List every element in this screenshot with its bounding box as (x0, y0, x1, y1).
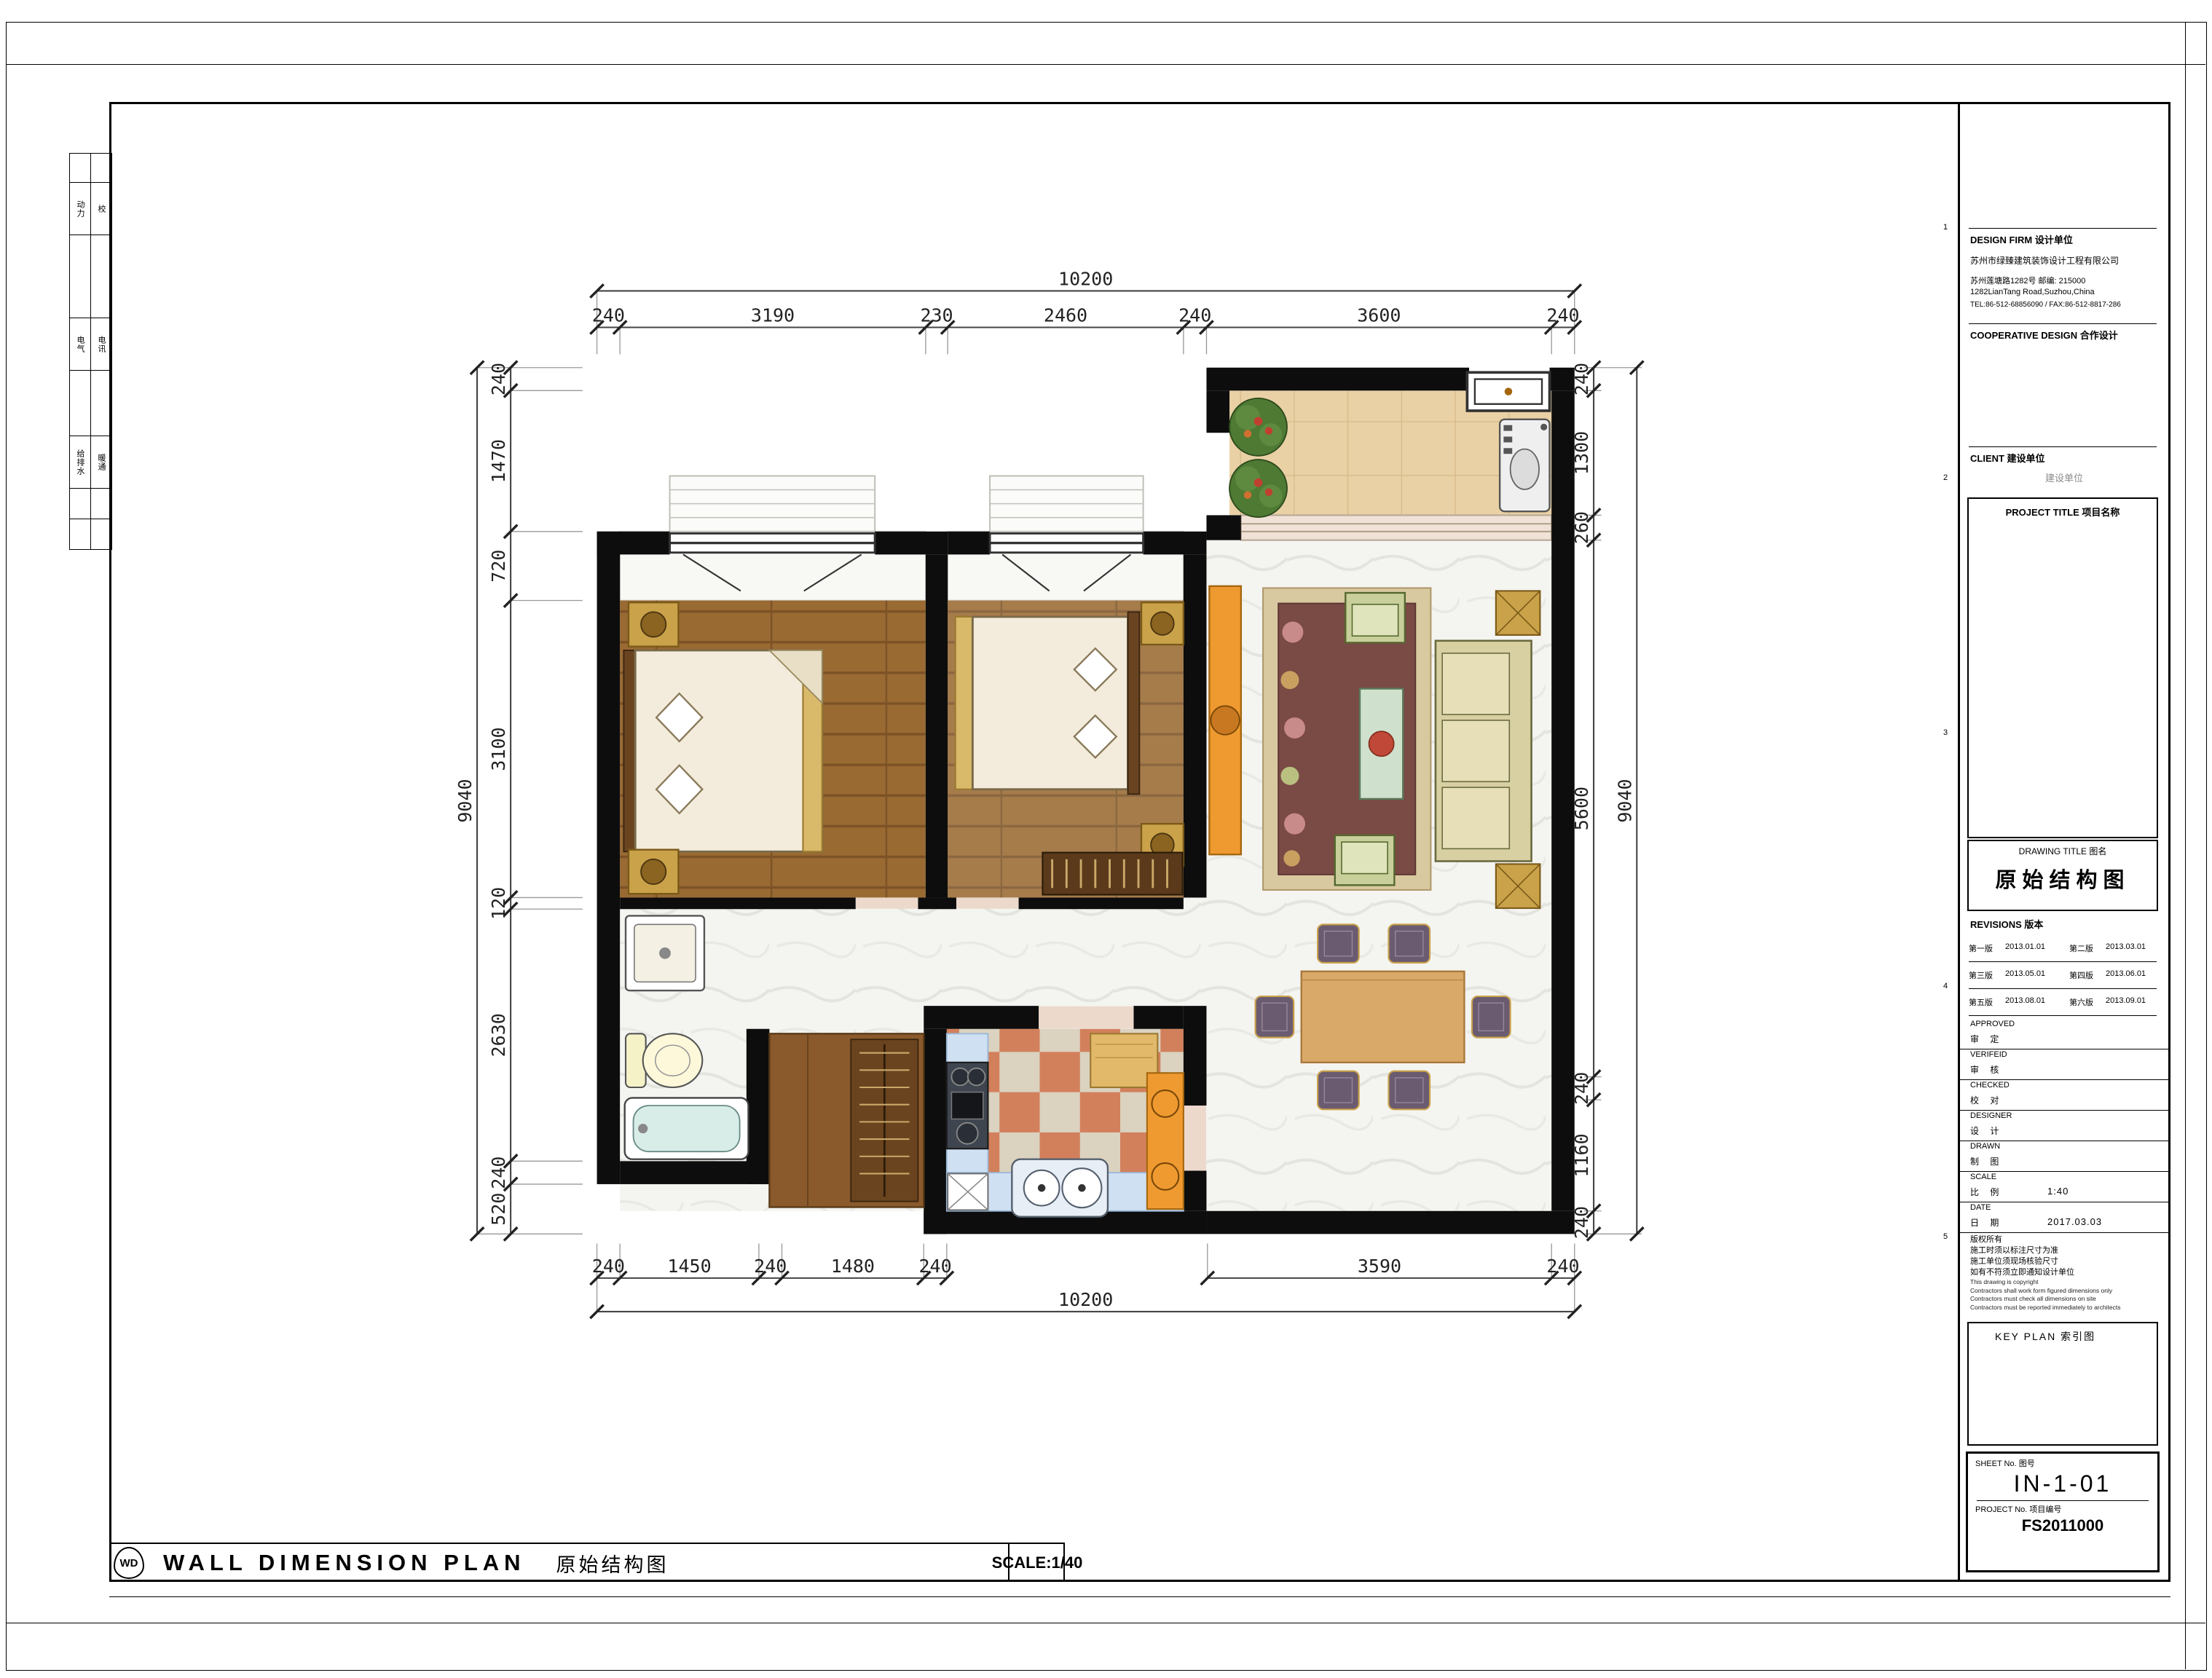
rev-name: 第四版 (2069, 969, 2106, 988)
bathroom-vanity (626, 915, 704, 990)
dim-top-overall: 10200 (1058, 269, 1113, 290)
dim-top-0: 240 (592, 305, 625, 326)
dim-bottom-1: 1450 (667, 1256, 711, 1277)
armchair-bottom (1335, 835, 1395, 885)
project-no-label: PROJECT No. 项目编号 (1975, 1503, 2157, 1515)
dim-left-6: 240 (488, 1157, 509, 1189)
rev-date: 2013.06.01 (2106, 969, 2157, 988)
side-table-top (1496, 591, 1540, 635)
client-label: CLIENT 建设单位 (1970, 451, 2045, 465)
revisions-label: REVISIONS 版本 (1970, 917, 2043, 931)
project-no: FS2011000 (1968, 1516, 2157, 1535)
bed1-headboard (623, 650, 635, 851)
scale-value: 1:40 (2047, 1186, 2069, 1197)
design-firm-label: DESIGN FIRM 设计单位 (1970, 232, 2073, 246)
bedroom1-door (856, 898, 918, 909)
dining-chair (1388, 924, 1430, 963)
sheet-bottom-rule-2 (6, 1623, 2205, 1623)
strip-cell (70, 519, 91, 550)
cooperative-design-label: COOPERATIVE DESIGN 合作设计 (1970, 328, 2118, 342)
strip-label-electrical: 电气 (70, 318, 91, 371)
grid-ref-3: 3 (1943, 728, 1948, 737)
dim-bottom-3: 1480 (831, 1256, 875, 1277)
title-block: DESIGN FIRM 设计单位 苏州市绿臻建筑装饰设计工程有限公司 苏州莲塘路… (1958, 102, 2170, 1582)
dim-top-5: 3600 (1357, 305, 1401, 326)
dim-top-1: 3190 (751, 305, 795, 326)
dim-top-3: 2460 (1044, 305, 1087, 326)
dim-left-5: 2630 (488, 1013, 509, 1057)
dining-chair (1388, 1071, 1430, 1110)
strip-label-plumbing: 给排水 (70, 436, 91, 489)
dim-left-7: 520 (488, 1193, 509, 1226)
armchair-top (1345, 593, 1405, 642)
bed1 (635, 650, 822, 851)
window-awnings (670, 476, 1144, 531)
dim-right-4: 240 (1571, 1072, 1592, 1105)
rev-date: 2013.09.01 (2106, 996, 2157, 1015)
dim-bottom-2: 240 (754, 1256, 787, 1277)
rev-name: 第六版 (2069, 996, 2106, 1015)
sheet-no-label: SHEET No. 图号 (1975, 1457, 2157, 1469)
grid-ref-1: 1 (1943, 223, 1948, 232)
footer-title-cn: 原始结构图 (556, 1549, 669, 1577)
rev-name: 第一版 (1969, 942, 2005, 961)
sheet-no-box: SHEET No. 图号 IN-1-01 PROJECT No. 项目编号 FS… (1966, 1451, 2160, 1572)
scale-field: SCALE 比 例 1:40 (1960, 1172, 2168, 1202)
dim-top-4: 240 (1178, 305, 1211, 326)
dim-left-overall: 9040 (454, 779, 476, 822)
dim-bottom-4: 240 (918, 1256, 951, 1277)
rev-date: 2013.08.01 (2005, 996, 2069, 1015)
dim-left-2: 720 (488, 550, 509, 583)
project-title-label: PROJECT TITLE 项目名称 (1969, 505, 2157, 519)
dim-right-overall: 9040 (1614, 779, 1635, 822)
toilet (626, 1033, 702, 1087)
revision-row-1: 第一版 2013.01.01 第二版 2013.03.01 (1969, 936, 2157, 962)
dish-rack (948, 1173, 988, 1210)
wardrobe (769, 1033, 924, 1207)
drawing-title-label: DRAWING TITLE 图名 (1969, 845, 2157, 857)
kitchen-sink (1012, 1159, 1108, 1217)
rev-name: 第三版 (1969, 969, 2005, 988)
kitchen-cabinet-right (1147, 1073, 1184, 1209)
floor-plan: 10200 240 3190 230 2460 240 3600 240 102… (444, 262, 1709, 1345)
plant-2 (1229, 460, 1287, 517)
strip-cell (91, 154, 112, 183)
sheet-no: IN-1-01 (1968, 1470, 2157, 1497)
sheet-bottom-rule-1 (109, 1596, 2170, 1597)
rev-name: 第二版 (2069, 942, 2106, 961)
strip-cell (70, 154, 91, 183)
design-firm-address-en: 1282LianTang Road,Suzhou,China (1970, 288, 2095, 296)
strip-cell (70, 371, 91, 436)
plant-1 (1229, 398, 1287, 456)
key-plan-label: KEY PLAN 索引图 (1995, 1329, 2157, 1344)
dining-chair (1472, 996, 1511, 1038)
balcony-window (1467, 372, 1549, 411)
dining-chair (1256, 996, 1294, 1038)
grid-ref-2: 2 (1943, 473, 1948, 482)
bathtub (625, 1098, 749, 1159)
client-value: 建设单位 (1960, 470, 2168, 484)
strip-cell (91, 519, 112, 550)
date-field: DATE 日 期 2017.03.03 (1960, 1202, 2168, 1233)
approved-field: APPROVED 审 定 (1960, 1019, 2168, 1049)
dim-left-1: 1470 (488, 439, 509, 483)
dim-right-5: 1160 (1571, 1133, 1592, 1177)
strip-label-check: 校 (91, 183, 112, 235)
balcony-door-track (1241, 515, 1551, 540)
dim-right-3: 5600 (1571, 787, 1592, 830)
wd-logo: WD (114, 1547, 144, 1579)
drawn-field: DRAWN 制 图 (1960, 1141, 2168, 1172)
grid-ref-5: 5 (1943, 1232, 1948, 1241)
dim-bottom-overall: 10200 (1058, 1289, 1113, 1310)
dim-top-2: 230 (920, 305, 953, 326)
dining-chair (1318, 924, 1359, 963)
dim-right-6: 240 (1571, 1206, 1592, 1239)
strip-label-power: 动力 (70, 183, 91, 235)
checked-field: CHECKED 校 对 (1960, 1080, 2168, 1111)
footer-scale: SCALE:1/40 (1008, 1544, 1065, 1582)
dim-right-2: 260 (1571, 511, 1592, 544)
bed2-hanger-bench (1042, 853, 1182, 895)
dim-left-0: 240 (488, 363, 509, 395)
kitchen-door (1184, 1106, 1206, 1170)
washing-machine (1500, 419, 1549, 511)
drawing-title: 原始结构图 (1969, 863, 2157, 894)
date-value: 2017.03.03 (2047, 1216, 2102, 1227)
strip-cell (70, 235, 91, 318)
revision-row-2: 第三版 2013.05.01 第四版 2013.06.01 (1969, 963, 2157, 989)
dim-right-1: 1300 (1571, 431, 1592, 475)
dim-bottom-0: 240 (592, 1256, 625, 1277)
footer-title-bar: WD WALL DIMENSION PLAN 原始结构图 SCALE:1/40 (109, 1543, 1065, 1582)
stove (947, 1063, 988, 1149)
sheet-right-rule (2185, 22, 2186, 1669)
strip-cell (91, 489, 112, 519)
dining-table (1302, 972, 1465, 1063)
rev-date: 2013.03.01 (2106, 942, 2157, 961)
designer-field: DESIGNER 设 计 (1960, 1111, 2168, 1141)
strip-cell (91, 235, 112, 318)
rev-date: 2013.01.01 (2005, 942, 2069, 961)
dim-bottom-6: 240 (1546, 1256, 1579, 1277)
coffee-table (1360, 689, 1403, 799)
bedroom2-door (956, 898, 1019, 909)
side-table-bottom (1496, 864, 1540, 908)
design-firm-address-cn: 苏州莲塘路1282号 邮编: 215000 (1970, 275, 2085, 286)
dim-top-6: 240 (1546, 305, 1579, 326)
dim-bottom-5: 3590 (1358, 1256, 1401, 1277)
bed2-headboard (1128, 612, 1140, 794)
bed2-runner (956, 617, 973, 789)
dim-left-4: 120 (488, 887, 509, 920)
discipline-strip: 动力 校 电气 电讯 给排水 暖通 (69, 153, 112, 550)
drawing-title-box: DRAWING TITLE 图名 原始结构图 (1967, 840, 2158, 911)
grid-ref-4: 4 (1943, 982, 1948, 990)
dim-left-3: 3100 (488, 727, 509, 771)
strip-label-hvac: 暖通 (91, 436, 112, 489)
rev-date: 2013.05.01 (2005, 969, 2069, 988)
strip-cell (70, 489, 91, 519)
notes: 版权所有 施工时须以标注尺寸为准 施工单位须现场核验尺寸 如有不符须立即通知设计… (1970, 1234, 2158, 1312)
key-plan-box: KEY PLAN 索引图 (1967, 1322, 2158, 1446)
dim-right-0: 240 (1571, 363, 1592, 395)
project-title-box: PROJECT TITLE 项目名称 (1967, 497, 2158, 838)
design-firm-tel: TEL:86-512-68856090 / FAX:86-512-8817-28… (1970, 301, 2121, 309)
sofa (1436, 641, 1532, 862)
revision-row-3: 第五版 2013.08.01 第六版 2013.09.01 (1969, 990, 2157, 1016)
bed2 (972, 617, 1127, 789)
strip-cell (91, 371, 112, 436)
strip-label-telecom: 电讯 (91, 318, 112, 371)
design-firm-name: 苏州市绿臻建筑装饰设计工程有限公司 (1970, 254, 2119, 267)
sheet-top-rule (6, 64, 2205, 65)
kitchen-opening (1039, 1007, 1133, 1029)
verified-field: VERIFEID 审 核 (1960, 1049, 2168, 1080)
dining-chair (1318, 1071, 1359, 1110)
footer-title-en: WALL DIMENSION PLAN (163, 1550, 526, 1576)
rev-name: 第五版 (1969, 996, 2005, 1015)
drawing-sheet: 动力 校 电气 电讯 给排水 暖通 1 2 3 4 5 (0, 0, 2212, 1678)
